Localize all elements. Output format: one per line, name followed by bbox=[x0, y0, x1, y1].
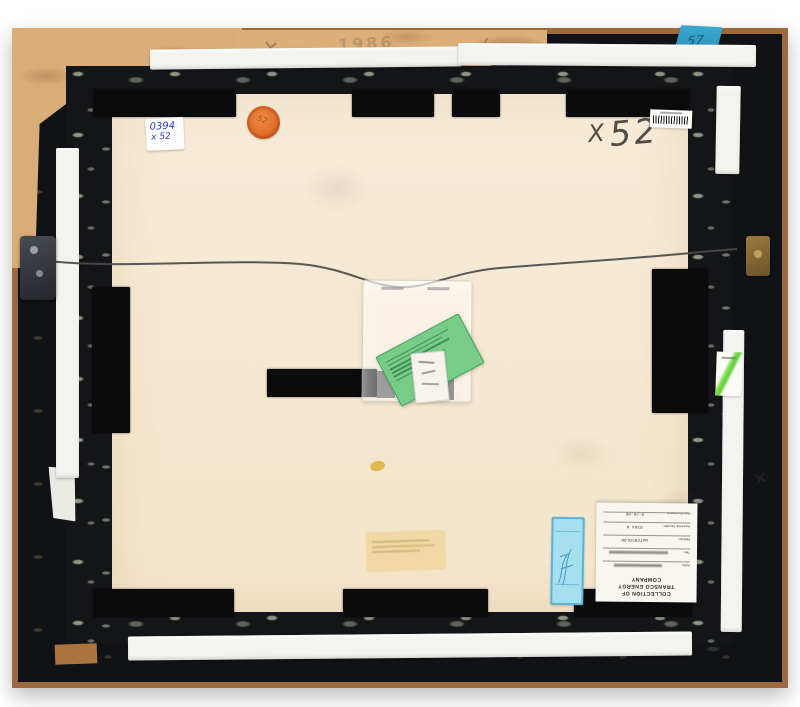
label-section-line bbox=[556, 531, 581, 532]
charcoal-x: X bbox=[587, 119, 606, 148]
field-label: Medium: bbox=[678, 537, 690, 541]
strap-hanger-right bbox=[746, 236, 770, 276]
tape-right-upper bbox=[715, 86, 741, 174]
field-label: Accession Number: bbox=[663, 524, 691, 528]
label-field-title: Title: bbox=[603, 548, 690, 560]
tape-bottom bbox=[128, 632, 692, 661]
inventory-sticker: 0394 x 52 bbox=[145, 117, 185, 151]
label-field-date: Date Purchased: 9-26-86 bbox=[603, 510, 690, 521]
barcode-label bbox=[650, 109, 693, 128]
velvet-pad bbox=[93, 89, 236, 117]
orange-dot-sticker: 52 bbox=[247, 106, 280, 139]
label-field-medium: Medium: WATERCOLOR bbox=[603, 535, 690, 547]
velvet-pad bbox=[92, 287, 130, 433]
screw-icon bbox=[36, 270, 43, 277]
inventory-sub-number: x 52 bbox=[151, 131, 180, 143]
field-label: Artist: bbox=[682, 563, 690, 567]
tape-top-left bbox=[150, 46, 462, 69]
illegible-typed-text bbox=[609, 551, 668, 554]
screw-icon bbox=[30, 246, 38, 254]
label-field-accession: Accession Number: 0394 W bbox=[603, 522, 690, 534]
cyan-inventory-label bbox=[550, 517, 585, 606]
field-value: 0394 W bbox=[603, 524, 666, 529]
sleeve-slit bbox=[381, 287, 403, 290]
frame-wood-chip bbox=[55, 643, 98, 664]
edge-tag-highlighter bbox=[715, 352, 743, 397]
collection-label: COLLECTION OF TRANSCO ENERGY COMPANY Art… bbox=[595, 502, 697, 602]
velvet-pad bbox=[93, 589, 234, 617]
backing-smudge bbox=[302, 164, 372, 214]
illegible-handwriting bbox=[418, 361, 434, 364]
faded-label-residue bbox=[365, 530, 446, 573]
label-field-artist: Artist: bbox=[603, 561, 690, 573]
photo-of-frame-verso: ✕ 1986 ✓ 57 bbox=[0, 0, 800, 707]
illegible-text bbox=[372, 550, 420, 554]
strap-hanger-left bbox=[20, 236, 56, 300]
illegible-handwriting bbox=[422, 383, 439, 386]
tape-left bbox=[56, 148, 79, 478]
field-label: Title: bbox=[683, 550, 690, 554]
illegible-text bbox=[372, 539, 430, 543]
velvet-pad bbox=[267, 369, 377, 397]
illegible-handwriting bbox=[552, 535, 582, 595]
barcode-digits bbox=[660, 112, 682, 115]
illegible-handwriting bbox=[421, 370, 435, 375]
illegible-typed-text bbox=[614, 564, 662, 567]
illegible-text bbox=[372, 544, 435, 548]
collection-label-header: TRANSCO ENERGY COMPANY bbox=[603, 575, 690, 590]
velvet-pad bbox=[343, 589, 488, 617]
barcode-icon bbox=[653, 115, 689, 124]
sleeve-slit bbox=[427, 287, 449, 290]
velvet-pad bbox=[652, 269, 708, 413]
backing-smudge bbox=[552, 434, 612, 474]
small-white-tag bbox=[410, 350, 449, 403]
tape-top-right bbox=[458, 43, 756, 67]
collection-label-header: COLLECTION OF bbox=[603, 589, 690, 597]
orange-dot-note: 52 bbox=[256, 113, 269, 125]
inventory-number: 0394 bbox=[149, 120, 180, 133]
field-value: WATERCOLOR bbox=[603, 537, 666, 542]
velvet-pad bbox=[352, 89, 434, 117]
screw-icon bbox=[754, 250, 762, 258]
velvet-pad bbox=[452, 89, 500, 117]
